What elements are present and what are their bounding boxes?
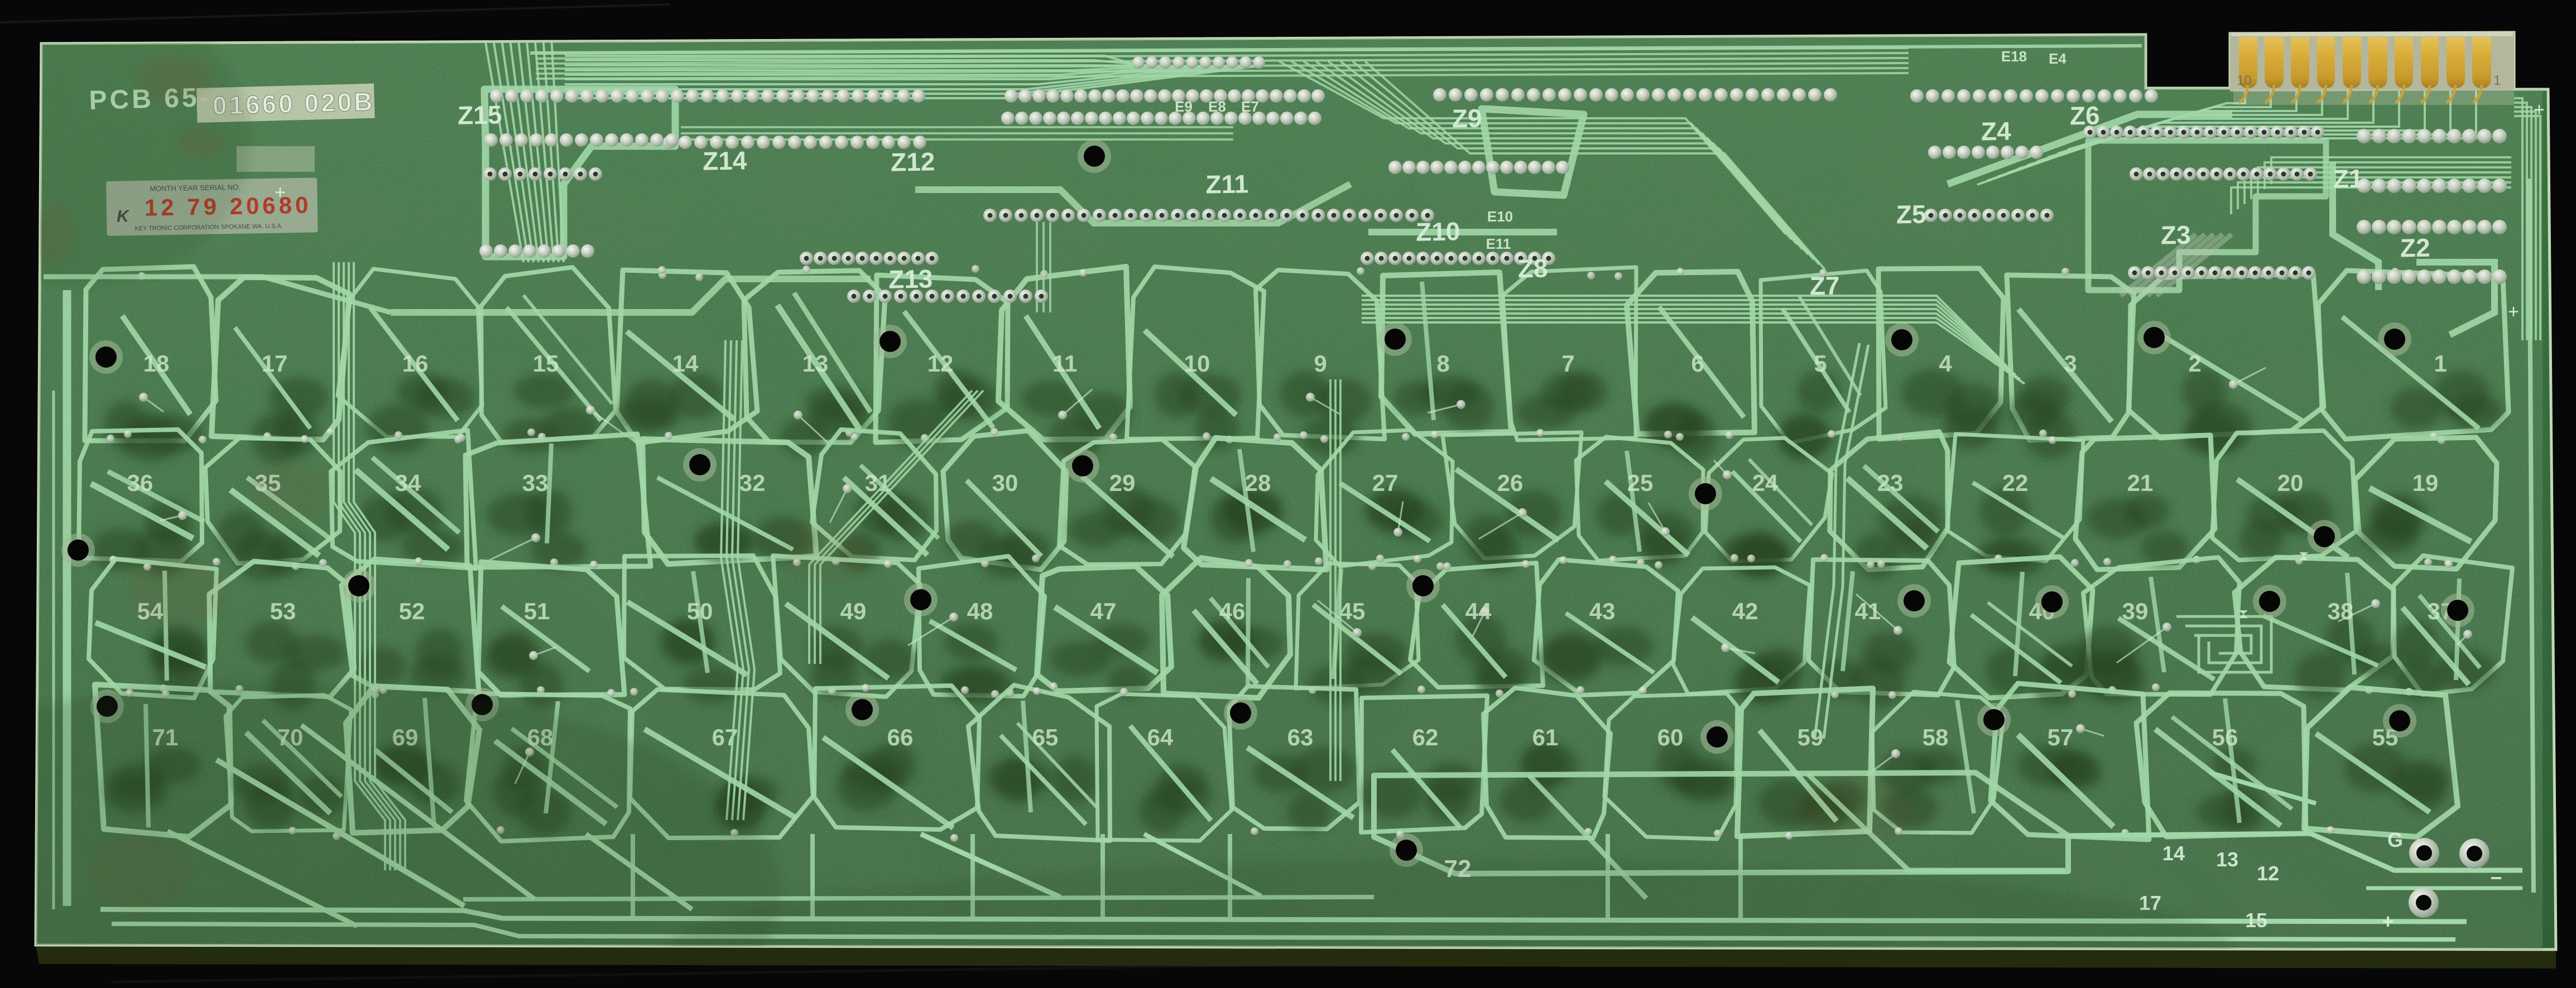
svg-text:10: 10 [2237, 73, 2252, 88]
svg-text:1: 1 [2493, 73, 2501, 88]
